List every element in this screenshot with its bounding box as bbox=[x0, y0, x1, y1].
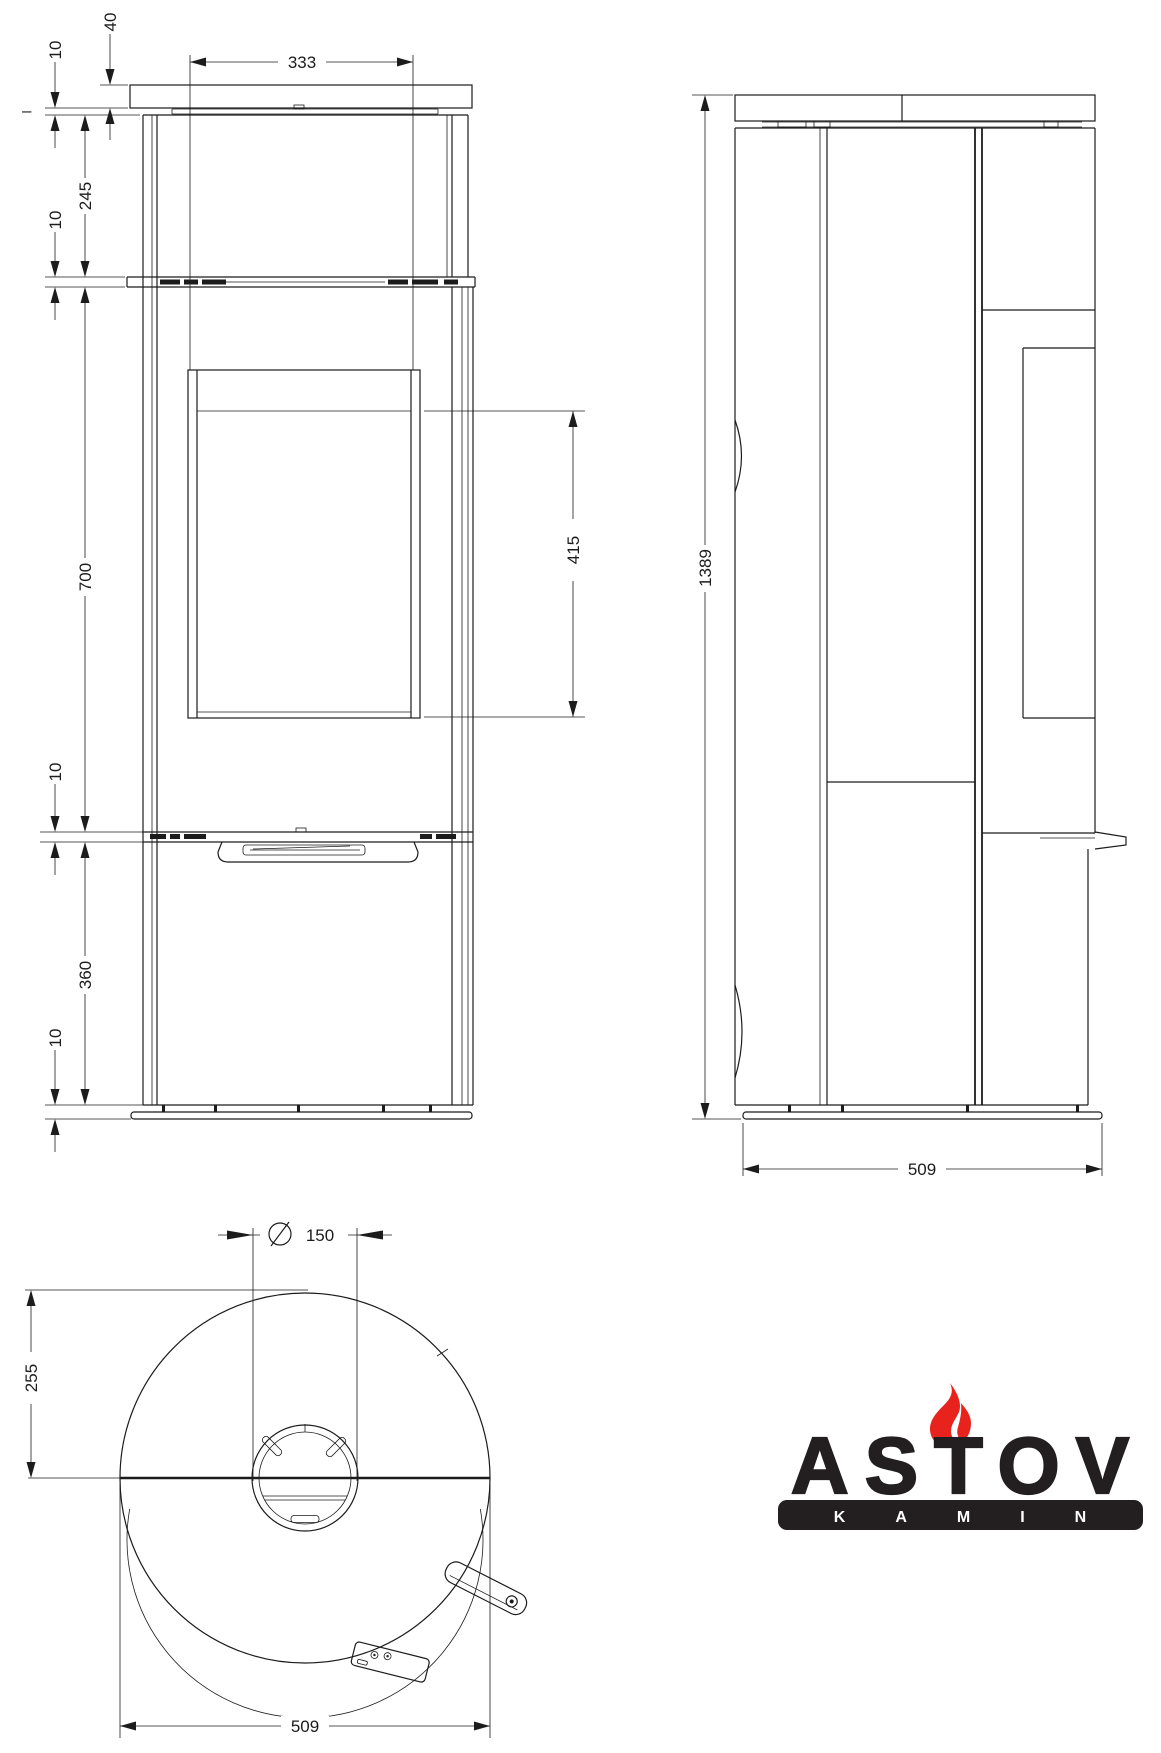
side-base bbox=[743, 1105, 1102, 1119]
brand-wordmark: ASTOV bbox=[791, 1421, 1145, 1510]
dim-rear-offset-255: 255 bbox=[22, 1290, 308, 1478]
dim-plate-gap-10: 10 – bbox=[22, 41, 140, 148]
side-door-bulge-upper bbox=[735, 420, 742, 492]
side-shelf-fin bbox=[1095, 832, 1126, 849]
front-view: 40 10 – 245 10 bbox=[22, 13, 585, 1152]
dim-door-width-333: 333 bbox=[190, 52, 413, 370]
dim-depth-509: 509 bbox=[743, 1123, 1102, 1179]
dim-flue-diameter-150: 150 bbox=[218, 1219, 392, 1481]
top-view: 150 255 509 bbox=[22, 1219, 530, 1738]
dim-text-10-shelf: 10 bbox=[46, 211, 65, 230]
dim-text-255: 255 bbox=[22, 1364, 41, 1392]
dim-door-panel-700: 700 bbox=[76, 287, 95, 832]
front-base bbox=[131, 1105, 472, 1119]
dim-overall-height-1389: 1389 bbox=[692, 95, 741, 1119]
side-top-plate bbox=[735, 95, 1095, 121]
dim-text-40: 40 bbox=[101, 13, 120, 32]
dim-text-360: 360 bbox=[76, 961, 95, 989]
brand-subtitle: KAMIN bbox=[834, 1509, 1136, 1526]
front-handle-band bbox=[143, 828, 473, 862]
dim-band-gap-10: 10 bbox=[40, 763, 143, 875]
side-door-bulge-lower bbox=[735, 985, 742, 1078]
front-top-plate bbox=[130, 85, 472, 108]
dim-text-1389: 1389 bbox=[696, 549, 715, 587]
dim-text-509-side: 509 bbox=[908, 1160, 936, 1179]
dim-text-700: 700 bbox=[76, 563, 95, 591]
side-view: 1389 509 bbox=[692, 95, 1126, 1179]
front-shelf-band bbox=[127, 277, 475, 287]
top-body-inner-arc bbox=[127, 1509, 483, 1718]
dim-text-245: 245 bbox=[76, 182, 95, 210]
ref-tick: – bbox=[22, 101, 32, 120]
brand-logo: ASTOV KAMIN bbox=[778, 1383, 1145, 1530]
dim-text-333: 333 bbox=[288, 53, 316, 72]
dim-upper-panel-245: 245 bbox=[45, 115, 125, 277]
dim-plate-thickness-40: 40 bbox=[100, 13, 128, 140]
dim-lower-panel-360: 360 bbox=[76, 842, 95, 1105]
technical-drawing-page: 40 10 – 245 10 bbox=[0, 0, 1161, 1753]
top-door-handle bbox=[442, 1558, 530, 1618]
dim-glass-height-415: 415 bbox=[424, 411, 585, 717]
dim-text-10-base: 10 bbox=[46, 1029, 65, 1048]
dim-text-509-top: 509 bbox=[291, 1717, 319, 1736]
dim-text-10-top: 10 bbox=[46, 41, 65, 60]
top-air-lever bbox=[350, 1641, 430, 1683]
dim-base-gap-10: 10 bbox=[45, 1029, 143, 1152]
dim-text-10-band: 10 bbox=[46, 763, 65, 782]
stove-dimension-drawing: 40 10 – 245 10 bbox=[0, 0, 1161, 1753]
front-glass-door bbox=[188, 370, 420, 718]
dim-text-415: 415 bbox=[564, 536, 583, 564]
dim-text-150: 150 bbox=[306, 1226, 334, 1245]
